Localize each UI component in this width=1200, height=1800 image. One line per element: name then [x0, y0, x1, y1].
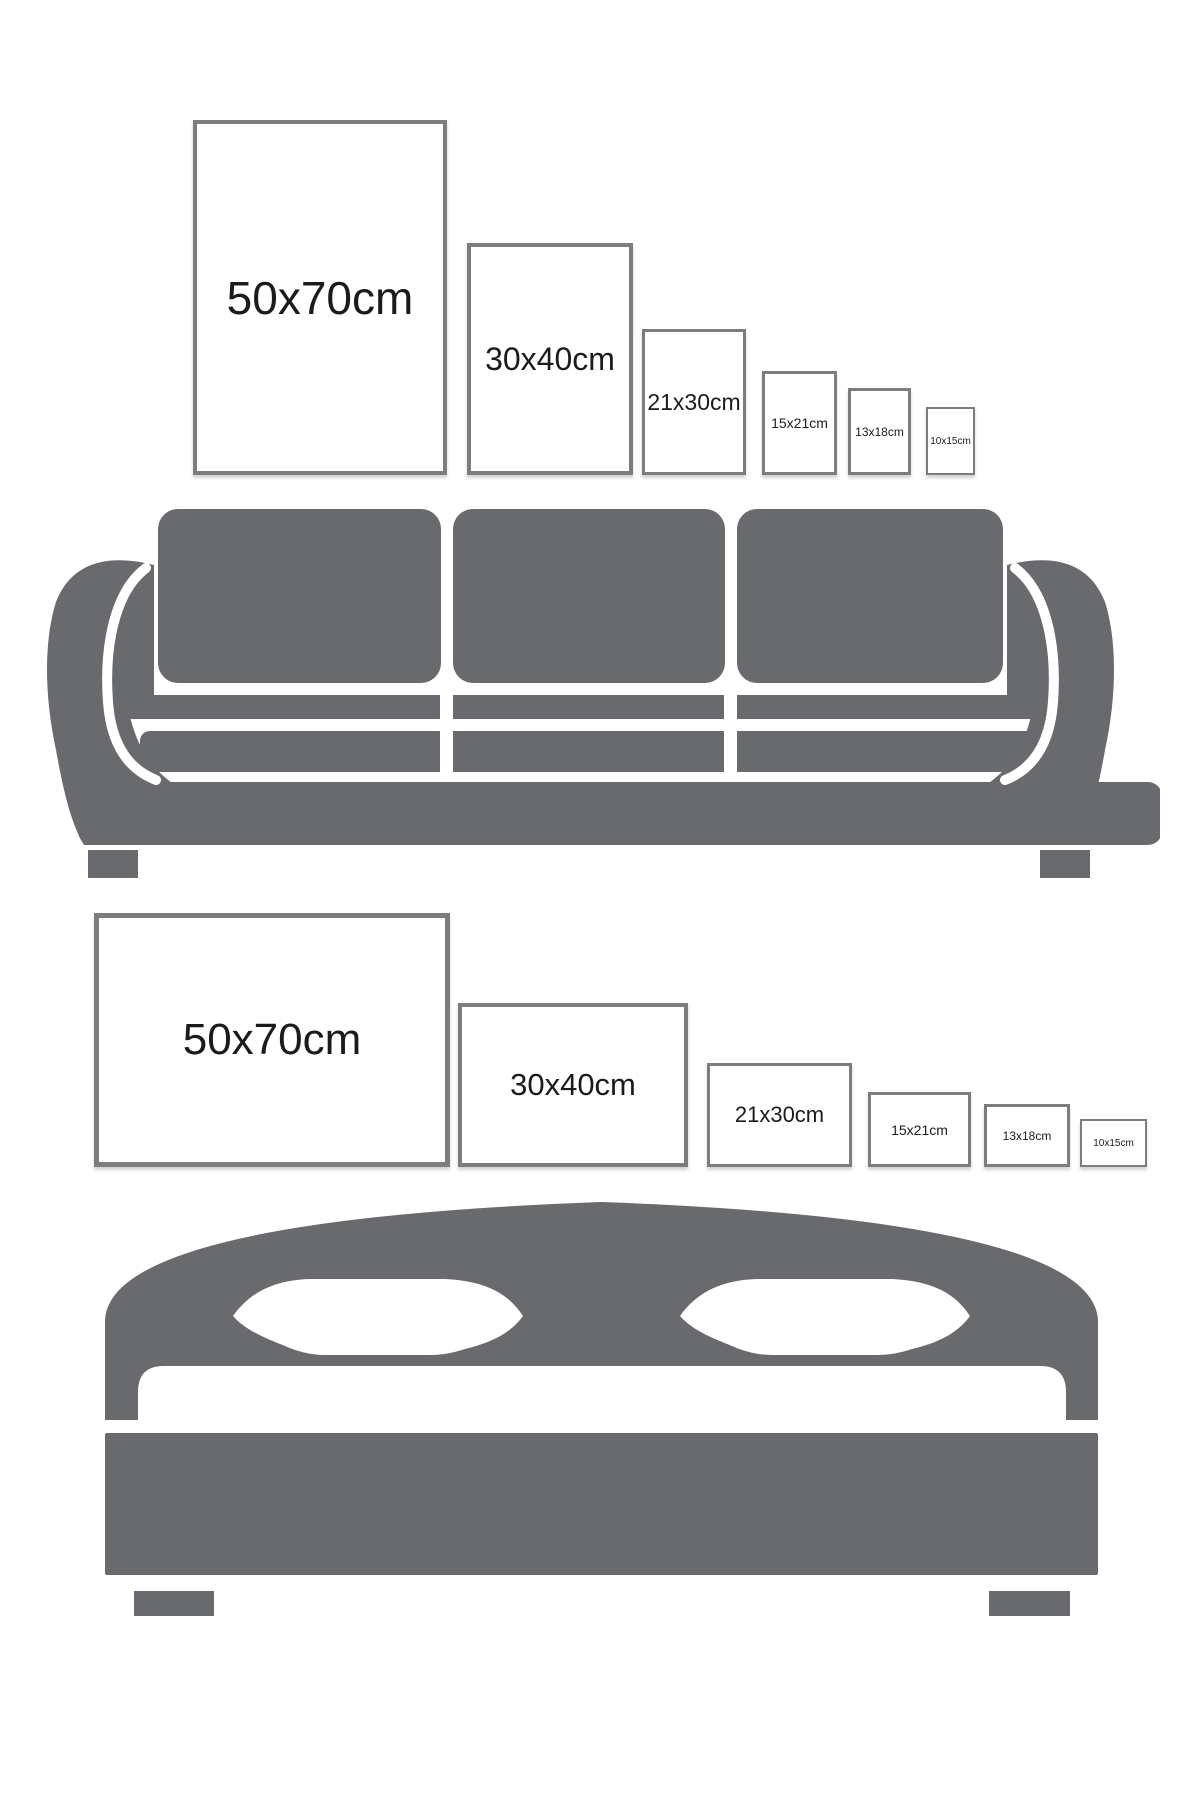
bed-foot-right [989, 1591, 1070, 1616]
cushion-gap [724, 685, 737, 775]
poster-size-comparison-infographic: 50x70cm 30x40cm 21x30cm 15x21cm 13x18cm … [0, 0, 1200, 1800]
frame-landscape-50x70: 50x70cm [94, 913, 450, 1167]
size-label: 50x70cm [227, 271, 414, 325]
frame-landscape-21x30: 21x30cm [707, 1063, 852, 1167]
bed-icon [60, 1190, 1140, 1630]
sofa-back-cushion [453, 509, 725, 683]
frame-portrait-21x30: 21x30cm [642, 329, 746, 475]
sofa-seat-cushions [140, 731, 1060, 772]
frame-landscape-13x18: 13x18cm [984, 1104, 1070, 1167]
frame-landscape-15x21: 15x21cm [868, 1092, 971, 1167]
size-label: 50x70cm [183, 1015, 362, 1065]
cushion-gap [440, 685, 453, 775]
bed-foot-left [134, 1591, 214, 1616]
size-label: 15x21cm [771, 415, 828, 431]
frame-portrait-10x15: 10x15cm [926, 407, 975, 475]
sofa-seat-deck [125, 695, 1075, 719]
size-label: 10x15cm [1093, 1138, 1134, 1149]
sofa-back-cushion [158, 509, 441, 683]
size-label: 13x18cm [855, 425, 904, 439]
frame-landscape-30x40: 30x40cm [458, 1003, 688, 1167]
sofa-icon [40, 480, 1160, 890]
frame-landscape-10x15: 10x15cm [1080, 1119, 1147, 1167]
frame-portrait-13x18: 13x18cm [848, 388, 911, 475]
size-label: 10x15cm [930, 436, 971, 447]
sofa-foot-left [88, 850, 138, 878]
frame-portrait-30x40: 30x40cm [467, 243, 633, 475]
size-label: 30x40cm [485, 341, 615, 378]
size-label: 13x18cm [1003, 1129, 1052, 1143]
bed-base [105, 1433, 1098, 1575]
bed-mattress-cutout [138, 1366, 1066, 1420]
size-label: 21x30cm [647, 389, 740, 416]
sofa-foot-right [1040, 850, 1090, 878]
size-label: 30x40cm [510, 1067, 636, 1103]
size-label: 15x21cm [891, 1122, 948, 1138]
frame-portrait-50x70: 50x70cm [193, 120, 447, 475]
sofa-back-cushion [737, 509, 1003, 683]
size-label: 21x30cm [735, 1102, 824, 1128]
frame-portrait-15x21: 15x21cm [762, 371, 837, 475]
